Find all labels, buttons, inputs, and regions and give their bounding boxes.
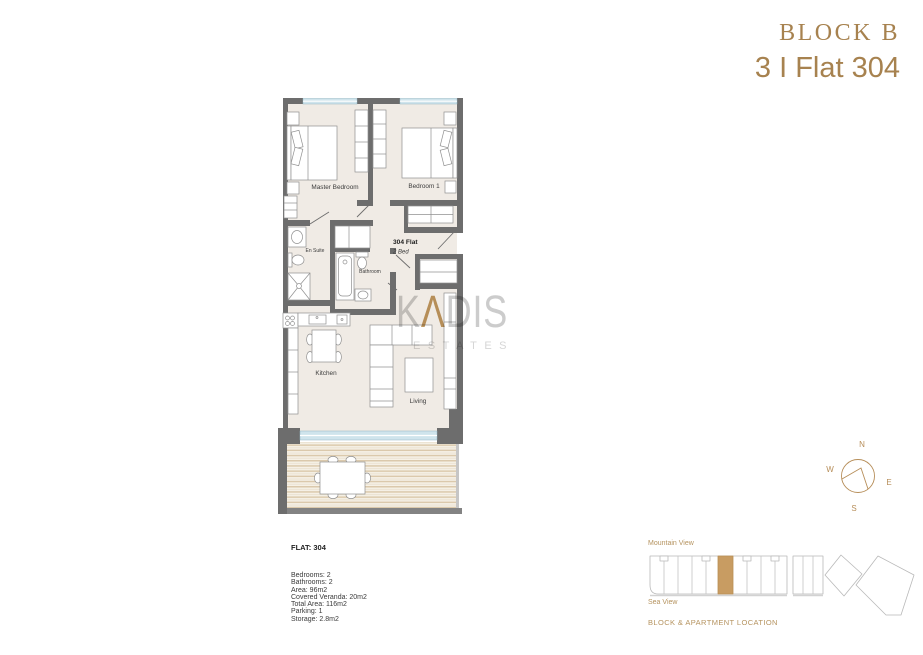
room-label-ensuite: En Suite <box>306 248 325 254</box>
nightstand-icon <box>445 181 456 193</box>
angled-building-2 <box>856 556 914 615</box>
nightstand-icon <box>444 112 456 125</box>
room-label-living: Living <box>410 398 427 405</box>
ensuite-sink-icon <box>288 227 306 247</box>
master-wardrobe-icon <box>284 196 297 218</box>
terrace-deck <box>287 442 456 508</box>
compass-east: E <box>886 478 891 487</box>
detail-line: Parking: 1 <box>291 608 367 615</box>
angled-building-1 <box>825 555 862 596</box>
nightstand-icon <box>287 182 299 194</box>
bathtub-icon <box>336 253 354 300</box>
flat-title: 3 I Flat 304 <box>755 52 900 85</box>
detail-line: Area: 96m2 <box>291 587 367 594</box>
unit-type-label: 2 Bed <box>392 250 409 256</box>
flat-details-lines: Bedrooms: 2 Bathrooms: 2 Area: 96m2 Cove… <box>291 572 367 623</box>
bedroom1-bed-icon <box>402 128 457 178</box>
detail-line: Bathrooms: 2 <box>291 579 367 586</box>
outdoor-table-icon <box>314 456 370 498</box>
coffee-table-icon <box>405 358 433 392</box>
terrace-bottom-wall <box>278 508 462 514</box>
flat-details: FLAT: 304 Bedrooms: 2 Bathrooms: 2 Area:… <box>291 543 367 623</box>
floor-plan: Master Bedroom Bedroom 1 En Suite Bathro… <box>278 96 464 520</box>
detail-line: Total Area: 116m2 <box>291 601 367 608</box>
unit-label: 304 Flat <box>393 239 418 246</box>
detail-line: Covered Veranda: 20m2 <box>291 594 367 601</box>
hallway-closet-icon <box>335 226 370 248</box>
terrace-right-edge <box>456 442 459 508</box>
detail-line: Storage: 2.8m2 <box>291 616 367 623</box>
compass-north: N <box>859 440 865 449</box>
compass-needle-icon <box>842 468 868 489</box>
room-label-kitchen: Kitchen <box>315 370 337 377</box>
tv-unit-icon <box>444 293 456 409</box>
stove-icon <box>283 313 298 328</box>
shower-icon <box>288 273 310 300</box>
mountain-view-label: Mountain View <box>648 540 694 547</box>
dining-table-icon <box>307 330 342 363</box>
master-bed-icon <box>287 126 337 180</box>
compass-south: S <box>851 504 856 513</box>
title-block: BLOCK B 3 I Flat 304 <box>755 20 900 85</box>
detail-line: Bedrooms: 2 <box>291 572 367 579</box>
block-locator-diagram <box>648 552 918 627</box>
room-label-bedroom1: Bedroom 1 <box>408 183 440 190</box>
block-title: BLOCK B <box>755 20 900 47</box>
flat-details-title: FLAT: 304 <box>291 543 367 552</box>
storage-closet-icon <box>420 260 457 283</box>
highlighted-apartment-unit <box>718 556 733 594</box>
room-label-master: Master Bedroom <box>311 184 358 191</box>
compass-west: W <box>826 465 834 474</box>
bedroom1-closet-icon <box>408 206 453 223</box>
room-label-bathroom: Bathroom <box>359 269 381 275</box>
bathroom-sink-icon <box>355 289 371 301</box>
compass-rose: N W E S <box>818 428 908 516</box>
page: { "header": { "block_title": "BLOCK B", … <box>0 0 923 655</box>
nightstand-icon <box>287 112 299 125</box>
